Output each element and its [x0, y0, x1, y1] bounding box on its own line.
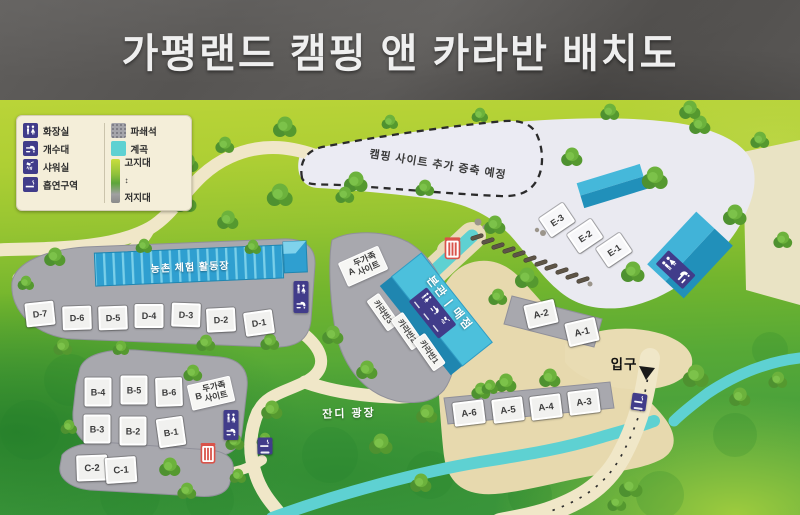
site-B-6: B-6: [155, 377, 183, 407]
campground-map-board: 가평랜드 캠핑 앤 카라반 배치도: [0, 0, 800, 515]
sink-icon: [23, 141, 38, 156]
site-D-3: D-3: [171, 303, 201, 328]
smoking-icon: [23, 177, 38, 192]
legend-label: 샤워실: [43, 160, 69, 174]
map-title: 가평랜드 캠핑 앤 카라반 배치도: [122, 21, 679, 79]
legend-terrain: 파쇄석 계곡 고지대 ↕ 저지대: [111, 123, 186, 203]
legend-item-shower: 샤워실: [23, 159, 98, 174]
elevation-arrow-icon: ↕: [125, 177, 151, 185]
crushed-stone-swatch: [111, 123, 126, 138]
site-D-5: D-5: [98, 306, 128, 331]
elevation-gradient-bar: [111, 159, 120, 203]
site-C-1: C-1: [105, 456, 138, 484]
smoking-icon: [633, 394, 645, 406]
entrance-label: 입구: [611, 353, 638, 373]
map-legend: 화장실 개수대 샤워실 흡연구역 파쇄석: [16, 115, 192, 211]
smoking-area-sign: [630, 393, 647, 412]
legend-label: 화장실: [43, 124, 69, 138]
legend-label: 파쇄석: [131, 124, 157, 138]
site-A-4: A-4: [529, 393, 563, 421]
legend-item-toilet: 화장실: [23, 123, 98, 138]
restroom-sign: [294, 281, 309, 313]
lowland-label: 저지대: [125, 194, 151, 204]
map-header: 가평랜드 캠핑 앤 카라반 배치도: [0, 0, 800, 100]
legend-item-crushed-stone: 파쇄석: [111, 123, 186, 138]
grass-plaza-label: 잔디 광장: [322, 404, 376, 422]
smoking-icon: [260, 439, 271, 450]
shower-icon: [23, 159, 38, 174]
site-D-7: D-7: [24, 301, 55, 328]
restroom-sign: [224, 410, 239, 440]
toilet-icon: [226, 413, 237, 424]
site-B-5: B-5: [121, 376, 148, 405]
legend-divider: [104, 123, 105, 203]
site-D-6: D-6: [62, 306, 92, 331]
legend-label: 계곡: [131, 142, 148, 156]
valley-swatch: [111, 141, 126, 156]
toilet-icon: [23, 123, 38, 138]
highland-label: 고지대: [125, 159, 151, 169]
site-D-2: D-2: [206, 307, 236, 332]
site-C-2: C-2: [76, 454, 108, 481]
site-B-1: B-1: [156, 416, 187, 448]
site-B-2: B-2: [120, 417, 147, 446]
trash-bin-icon: [445, 237, 461, 258]
site-B-3: B-3: [84, 415, 111, 444]
toilet-icon: [296, 284, 307, 295]
site-A-5: A-5: [491, 396, 525, 424]
legend-facilities: 화장실 개수대 샤워실 흡연구역: [23, 123, 98, 203]
site-B-4: B-4: [85, 378, 112, 407]
sink-icon: [226, 426, 237, 437]
legend-label: 흡연구역: [43, 178, 78, 192]
site-A-6: A-6: [452, 399, 486, 427]
site-A-3: A-3: [567, 388, 601, 416]
two-family-b-prefix: B: [194, 390, 203, 401]
legend-item-valley: 계곡: [111, 141, 186, 156]
legend-item-sink: 개수대: [23, 141, 98, 156]
site-D-4: D-4: [135, 304, 164, 328]
legend-item-smoking: 흡연구역: [23, 177, 98, 192]
site-D-1: D-1: [243, 309, 275, 337]
trash-bin-icon: [201, 443, 216, 463]
legend-label: 개수대: [43, 142, 69, 156]
legend-item-elevation: 고지대 ↕ 저지대: [111, 159, 186, 203]
map-canvas: 화장실 개수대 샤워실 흡연구역 파쇄석: [0, 100, 800, 515]
smoking-area-sign: [258, 438, 273, 455]
sink-icon: [296, 299, 307, 310]
